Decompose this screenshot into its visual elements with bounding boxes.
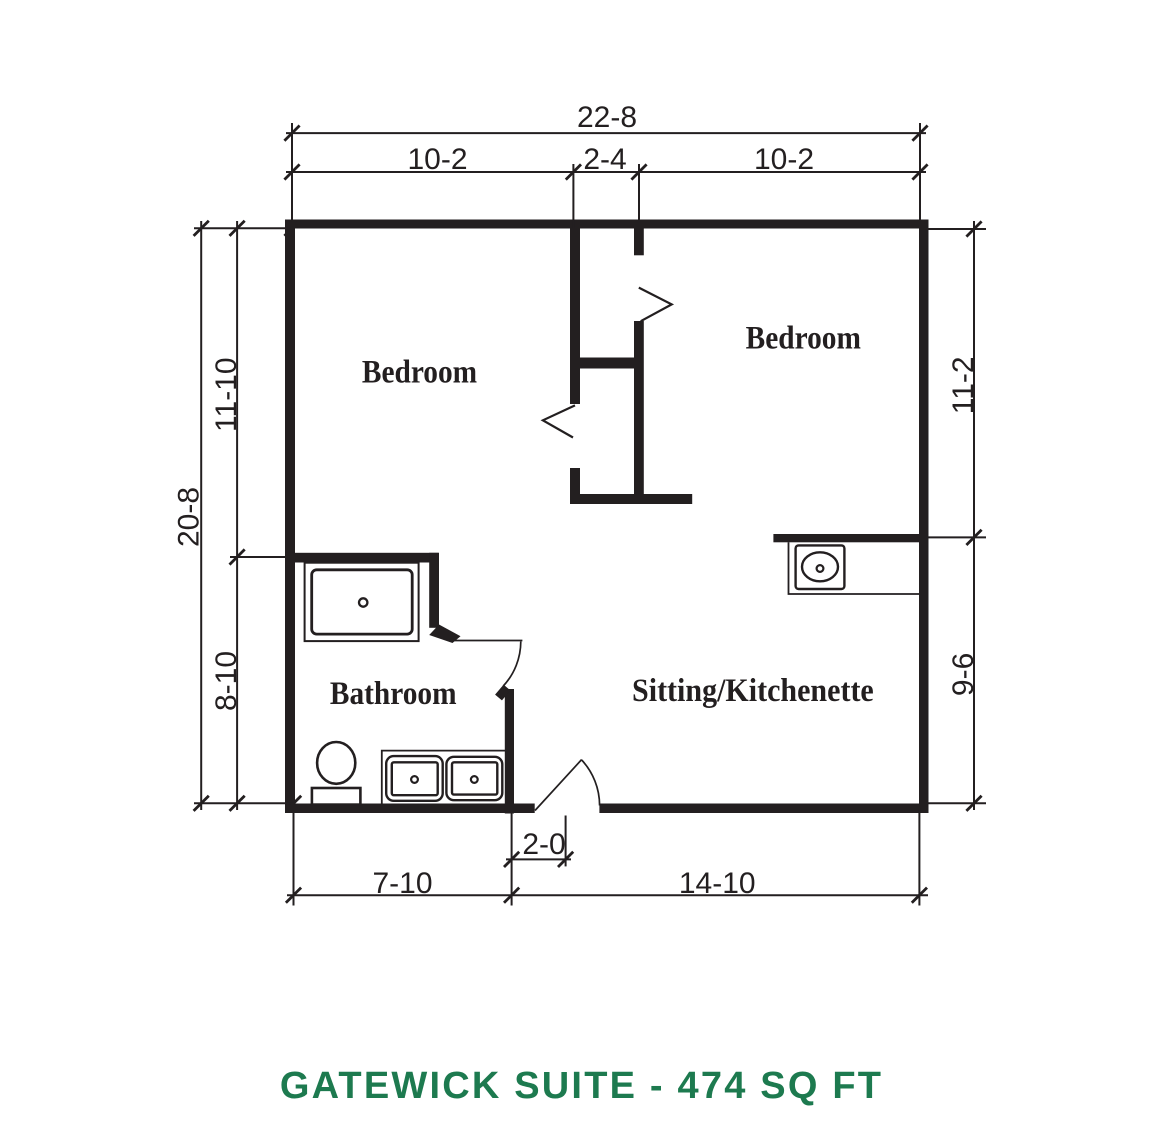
svg-text:8-10: 8-10 — [210, 651, 243, 711]
svg-text:Bedroom: Bedroom — [362, 353, 477, 390]
svg-text:22-8: 22-8 — [577, 101, 637, 134]
svg-text:Bedroom: Bedroom — [746, 319, 861, 356]
svg-text:11-2: 11-2 — [947, 356, 980, 414]
svg-text:7-10: 7-10 — [372, 867, 432, 900]
svg-text:10-2: 10-2 — [754, 143, 814, 176]
svg-text:Sitting/Kitchenette: Sitting/Kitchenette — [632, 672, 874, 709]
svg-text:9-6: 9-6 — [947, 653, 980, 696]
svg-text:2-4: 2-4 — [583, 143, 626, 176]
svg-text:Bathroom: Bathroom — [330, 674, 457, 711]
svg-text:20-8: 20-8 — [173, 487, 206, 547]
svg-text:2-0: 2-0 — [522, 828, 565, 861]
svg-text:GATEWICK SUITE - 474 SQ FT: GATEWICK SUITE - 474 SQ FT — [280, 1065, 883, 1107]
svg-text:14-10: 14-10 — [679, 867, 756, 900]
svg-text:10-2: 10-2 — [407, 143, 467, 176]
svg-text:11-10: 11-10 — [210, 357, 243, 432]
